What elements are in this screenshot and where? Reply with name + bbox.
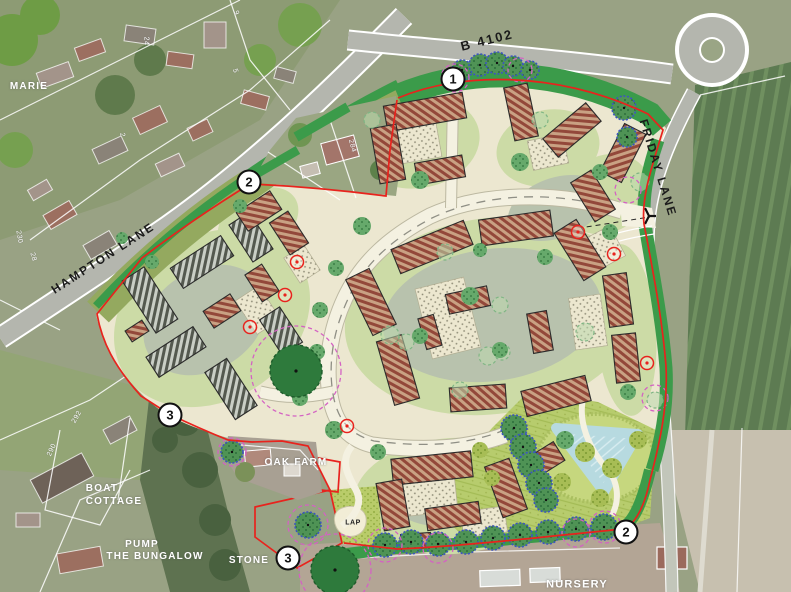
tree-center-dot	[623, 107, 625, 109]
tree-center-dot	[512, 65, 514, 67]
street-tree	[537, 249, 553, 265]
open-space-tree	[602, 458, 622, 478]
tree-center-dot	[603, 526, 605, 528]
tree-center-dot	[479, 64, 481, 66]
building-footprint	[612, 333, 641, 383]
tree-center-dot	[294, 369, 297, 372]
tree-center-dot	[461, 69, 463, 71]
tree-center-dot	[437, 543, 439, 545]
tree-center-dot	[345, 424, 348, 427]
street-tree	[328, 260, 344, 276]
tree-center-dot	[612, 252, 615, 255]
tree-center-dot	[283, 293, 286, 296]
tree-center-dot	[231, 451, 233, 453]
tree-center-dot	[333, 568, 336, 571]
street-tree	[353, 217, 371, 235]
tree-center-dot	[465, 541, 467, 543]
masterplan-map: B 4102HAMPTON LANEFRIDAY LANEMARIEBOATCO…	[0, 0, 791, 592]
tree-center-dot	[513, 427, 515, 429]
tree-center-dot	[492, 537, 494, 539]
tree-center-dot	[575, 528, 577, 530]
parking-court	[569, 294, 608, 350]
proposed-tree-indicative	[452, 382, 468, 398]
street-tree	[145, 255, 159, 269]
street-tree	[492, 342, 508, 358]
tree-center-dot	[545, 499, 547, 501]
proposed-tree-indicative	[364, 112, 380, 128]
street-tree	[511, 153, 529, 171]
map-canvas	[0, 0, 791, 592]
street-tree	[370, 444, 386, 460]
open-space-tree	[629, 431, 647, 449]
tree-center-dot	[626, 136, 628, 138]
proposed-tree-indicative	[381, 326, 399, 344]
tree-center-dot	[384, 544, 386, 546]
street-tree	[312, 302, 328, 318]
street-tree	[411, 171, 429, 189]
open-space-tree	[472, 442, 488, 458]
street-tree	[620, 384, 636, 400]
tree-center-dot	[538, 482, 540, 484]
tree-center-dot	[576, 230, 579, 233]
street-tree	[233, 199, 247, 213]
tree-center-dot	[248, 325, 251, 328]
tree-center-dot	[307, 524, 309, 526]
proposed-tree-indicative	[532, 112, 548, 128]
street-tree	[461, 287, 479, 305]
tree-center-dot	[529, 69, 531, 71]
open-space-tree	[484, 470, 500, 486]
street-tree	[412, 328, 428, 344]
tree-center-dot	[547, 531, 549, 533]
tree-center-dot	[295, 260, 298, 263]
tree-center-dot	[519, 534, 521, 536]
open-space-tree	[553, 473, 571, 491]
open-space-tree	[575, 442, 595, 462]
proposed-tree-indicative	[437, 244, 453, 260]
street-tree	[592, 164, 608, 180]
street-tree	[556, 431, 574, 449]
tree-center-dot	[410, 541, 412, 543]
tree-center-dot	[496, 62, 498, 64]
street-tree	[473, 243, 487, 257]
tree-center-dot	[645, 361, 648, 364]
proposed-tree-indicative	[647, 392, 663, 408]
tree-center-dot	[530, 464, 532, 466]
proposed-tree-indicative	[398, 334, 414, 350]
street-tree	[116, 232, 128, 244]
proposed-tree-indicative	[576, 323, 594, 341]
open-space-tree	[591, 489, 609, 507]
proposed-tree-indicative	[492, 297, 508, 313]
street-tree	[602, 224, 618, 240]
tree-center-dot	[522, 446, 524, 448]
